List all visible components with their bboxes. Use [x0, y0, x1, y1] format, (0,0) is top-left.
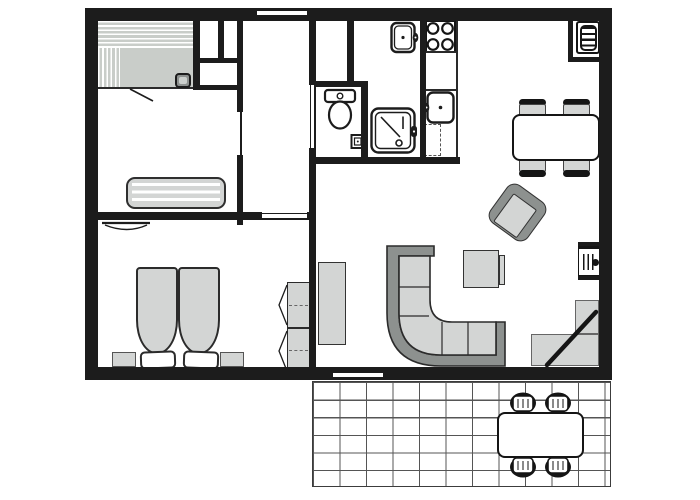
window-top — [257, 10, 307, 16]
outdoor-chair — [510, 393, 536, 414]
bedroom2-opening-line — [262, 218, 307, 220]
wall-kitchen-back — [420, 21, 426, 161]
bedroom2-opening-line — [262, 213, 307, 215]
wall-bedroom-divider-right — [307, 212, 316, 220]
wall-tv-stub-top — [578, 242, 599, 246]
window-bottom — [333, 372, 383, 378]
bedroom1-door-leaf — [240, 112, 242, 155]
wall-hall-left-upper — [237, 15, 243, 112]
wall-washroom-left — [347, 21, 354, 81]
floor-plan — [0, 0, 700, 500]
toilet-opening-line — [314, 85, 316, 148]
outdoor-chair — [510, 457, 536, 478]
outdoor-table — [497, 412, 584, 458]
wall-hall-right-upper — [309, 21, 316, 85]
wall-bedroom-divider-left — [98, 212, 262, 220]
wall-toilet-right — [361, 81, 368, 159]
wall-bath-bottom — [309, 157, 460, 164]
wall-fireplace-bottom — [568, 57, 599, 62]
wall-tv-stub-bottom — [578, 276, 599, 280]
wall-closet-divider — [218, 15, 224, 58]
wall-fireplace-left — [568, 21, 573, 62]
wall-hall-right-lower — [309, 148, 316, 367]
outdoor-chair — [545, 457, 571, 478]
outdoor-chair — [545, 393, 571, 414]
toilet-opening-line — [310, 85, 312, 148]
wall-sauna-right — [193, 15, 200, 90]
